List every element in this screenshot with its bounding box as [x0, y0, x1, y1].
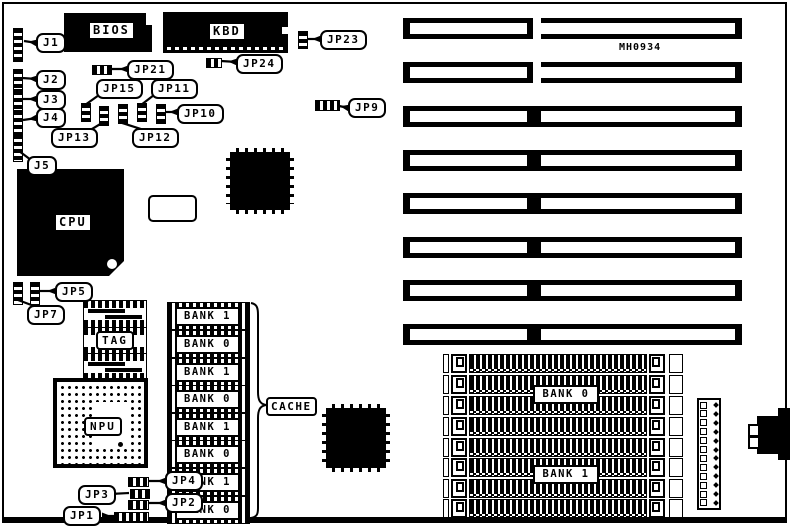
- keyboard-din-connector: [757, 416, 779, 454]
- isa-slot-7: [403, 280, 742, 301]
- cache-chip-1: BANK 1: [167, 302, 250, 330]
- connector-j5: [13, 134, 23, 162]
- isa-slot-3: [403, 106, 742, 127]
- isa-slot-1: [403, 18, 742, 39]
- cache-controller-qfp-chip: [326, 408, 386, 468]
- isa-slot-8: [403, 324, 742, 345]
- callout-j4: J4: [36, 108, 66, 128]
- isa-slot-4: [403, 150, 742, 171]
- cache-chip-3: BANK 1: [167, 358, 250, 386]
- jumper-jp13: [99, 106, 109, 126]
- jumper-jp5: [30, 282, 40, 305]
- crystal-oscillator: [148, 195, 197, 222]
- tag-ram-label: TAG: [96, 331, 134, 350]
- tag-ram-chip-3: [83, 353, 147, 381]
- callout-jp1: JP1: [63, 506, 101, 526]
- jumper-jp1: [114, 512, 149, 522]
- jumper-jp21: [92, 65, 112, 75]
- simm-socket-1: [443, 354, 683, 373]
- callout-jp21: JP21: [127, 60, 174, 80]
- simm-socket-8: [443, 499, 683, 518]
- isa-slot-5: [403, 193, 742, 214]
- cache-chip-6-label: BANK 0: [175, 445, 240, 464]
- jumper-jp3: [130, 489, 150, 499]
- cache-chip-5-label: BANK 1: [175, 418, 240, 437]
- tag-ram-chip-1: [83, 300, 147, 328]
- callout-jp12: JP12: [132, 128, 179, 148]
- kbd-chip-notch: [282, 27, 289, 34]
- callout-jp13: JP13: [51, 128, 98, 148]
- cache-chip-5: BANK 1: [167, 413, 250, 441]
- callout-jp4: JP4: [165, 471, 203, 491]
- keyboard-din-connector-flange: [778, 408, 790, 460]
- callout-jp2: JP2: [165, 493, 203, 513]
- jumper-jp11: [137, 103, 147, 122]
- simm-socket-4: [443, 417, 683, 436]
- connector-j3: [13, 90, 23, 112]
- isa-slot-2: [403, 62, 742, 83]
- callout-jp11: JP11: [151, 79, 198, 99]
- callout-jp9: JP9: [348, 98, 386, 118]
- cpu-pin1-dot: [107, 259, 117, 269]
- motherboard-diagram: BIOS KBD CPU TAG BANK 1 BANK 0 BANK 1 BA…: [0, 0, 791, 532]
- callout-jp24: JP24: [236, 54, 283, 74]
- connector-j1: [13, 28, 23, 62]
- cache-chip-4: BANK 0: [167, 385, 250, 413]
- cache-chip-2-label: BANK 0: [175, 335, 240, 354]
- callout-j3: J3: [36, 90, 66, 110]
- callout-jp7: JP7: [27, 305, 65, 325]
- npu-label: NPU: [84, 417, 122, 436]
- kbd-chip-pin-row: [167, 47, 285, 50]
- keyboard-connector-pin-2: [748, 436, 760, 449]
- cpu-chip-label: CPU: [56, 215, 90, 230]
- cache-chip-6: BANK 0: [167, 440, 250, 468]
- callout-j5: J5: [27, 156, 57, 176]
- callout-jp10: JP10: [177, 104, 224, 124]
- power-connector: [697, 398, 721, 510]
- jumper-jp15: [81, 103, 91, 122]
- cache-chip-2: BANK 0: [167, 330, 250, 358]
- jumper-jp9: [315, 100, 340, 111]
- jumper-jp10: [156, 104, 166, 124]
- jumper-jp24: [206, 58, 222, 68]
- jumper-jp23: [298, 31, 308, 49]
- jumper-jp4: [128, 477, 149, 487]
- callout-jp5: JP5: [55, 282, 93, 302]
- callout-j2: J2: [36, 70, 66, 90]
- connector-j2: [13, 69, 23, 90]
- bios-chip-notch: [146, 13, 152, 25]
- jumper-jp12: [118, 104, 128, 124]
- cache-chip-1-label: BANK 1: [175, 307, 240, 326]
- callout-j1: J1: [36, 33, 66, 53]
- chipset-qfp-chip: [230, 152, 290, 210]
- callout-jp15: JP15: [96, 79, 143, 99]
- bios-chip-label: BIOS: [90, 23, 133, 38]
- board-part-number: MH0934: [619, 42, 661, 53]
- kbd-chip-label: KBD: [210, 24, 244, 39]
- jumper-jp2: [128, 500, 149, 510]
- callout-jp23: JP23: [320, 30, 367, 50]
- cache-brace-label: CACHE: [266, 397, 317, 416]
- power-pin-row: [700, 402, 718, 408]
- callout-jp3: JP3: [78, 485, 116, 505]
- jumper-jp7: [13, 282, 23, 305]
- cache-chip-4-label: BANK 0: [175, 390, 240, 409]
- isa-slot-6: [403, 237, 742, 258]
- cache-chip-3-label: BANK 1: [175, 363, 240, 382]
- simm-bank1-label: BANK 1: [533, 465, 599, 484]
- simm-bank0-label: BANK 0: [533, 385, 599, 404]
- connector-j4: [13, 110, 23, 134]
- npu-pin1-dot: [118, 442, 123, 447]
- simm-socket-5: [443, 438, 683, 457]
